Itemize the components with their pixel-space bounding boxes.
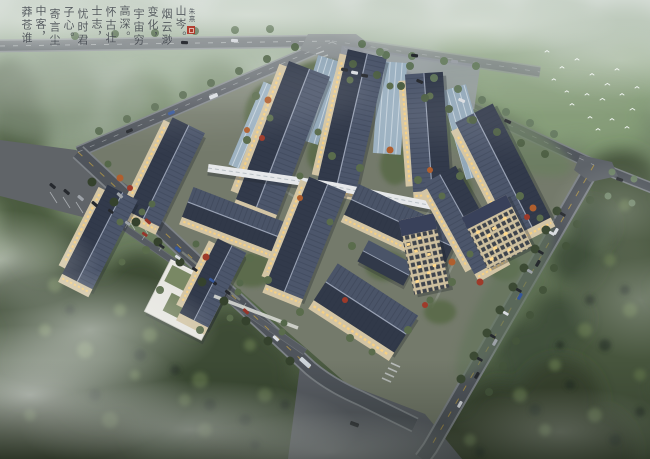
bottom-shade	[0, 360, 650, 459]
rendering-scene	[0, 0, 650, 459]
aerial-rendering-canvas: 山岑。 烟云渺 变化， 宇宙穷 高深。 怀古壮 士志， 忧时君 子心。 寄言尘 …	[0, 0, 650, 459]
